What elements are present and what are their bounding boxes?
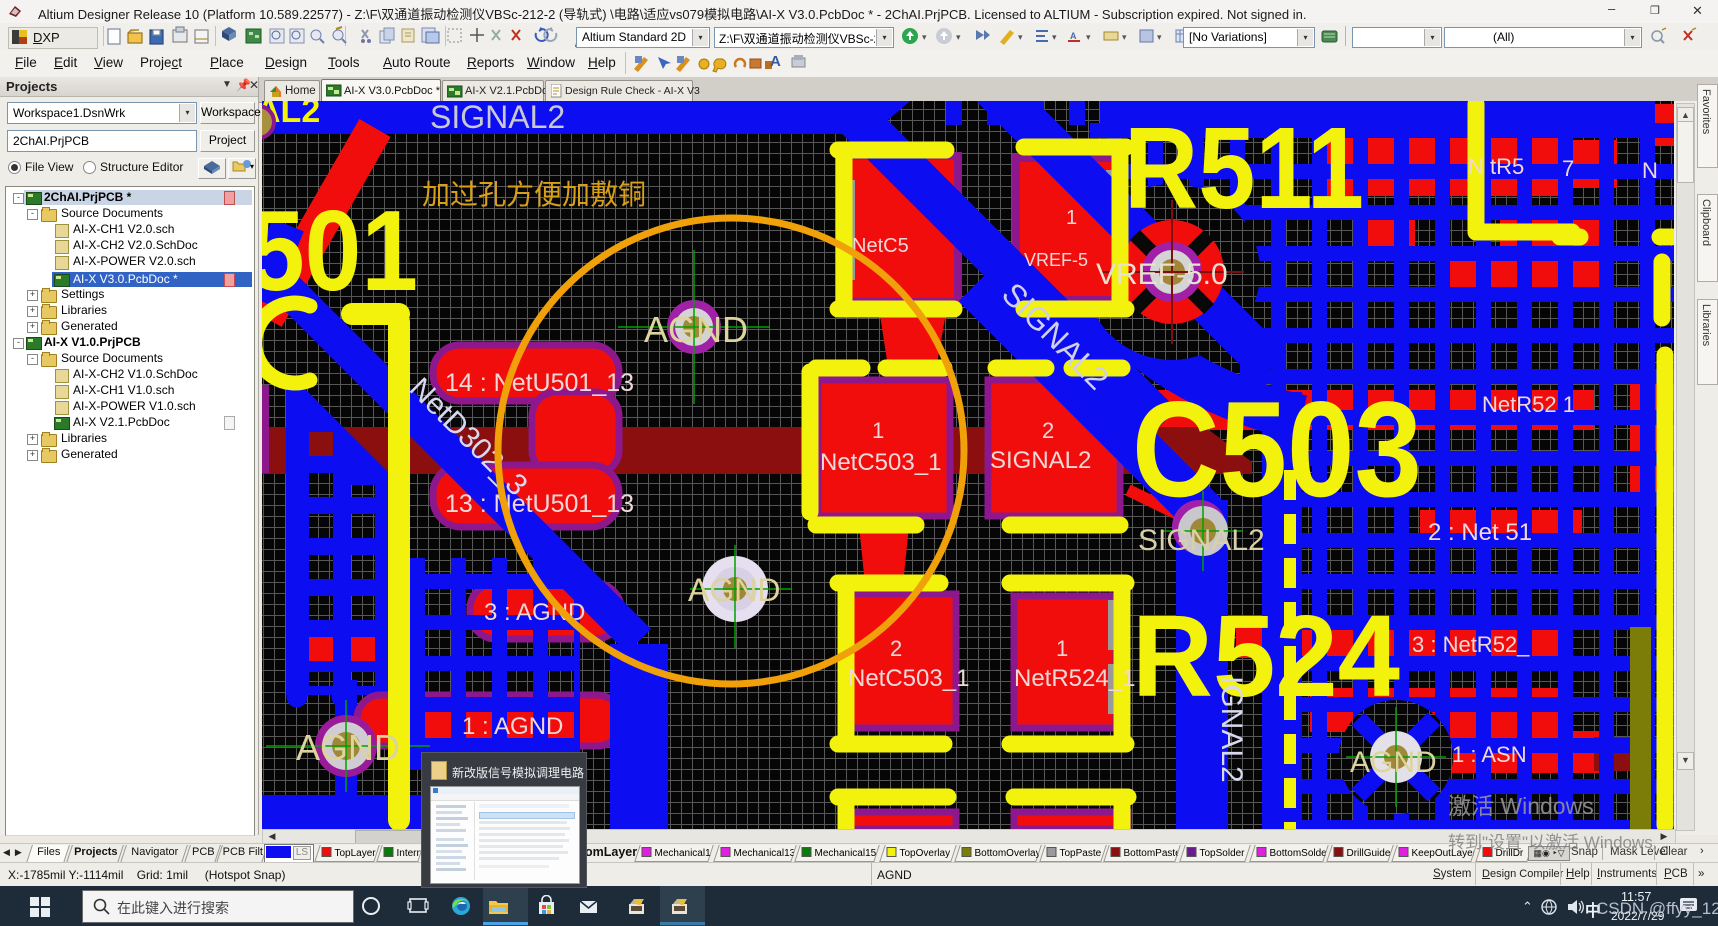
svg-text:SIGNAL2: SIGNAL2 xyxy=(430,101,565,135)
svg-text:14 : NetU501_13: 14 : NetU501_13 xyxy=(445,369,634,397)
svg-text:2: 2 xyxy=(1042,418,1054,443)
svg-text:2 : Net 51: 2 : Net 51 xyxy=(1428,519,1532,546)
svg-text:NetC503_1: NetC503_1 xyxy=(820,449,941,476)
svg-text:▾: ▾ xyxy=(1157,32,1162,42)
svg-text:NetR524_1: NetR524_1 xyxy=(1014,665,1135,692)
svg-text:501: 501 xyxy=(262,188,418,315)
svg-text:IGNAL2: IGNAL2 xyxy=(1215,676,1248,783)
svg-text:▾: ▾ xyxy=(1122,32,1127,42)
svg-text:▾: ▾ xyxy=(1086,32,1091,42)
svg-text:VREF-5: VREF-5 xyxy=(1024,250,1088,270)
svg-text:N: N xyxy=(1642,158,1658,183)
svg-text:▾: ▾ xyxy=(956,32,961,42)
svg-text:R524: R524 xyxy=(1132,591,1400,721)
svg-text:SIGNAL2: SIGNAL2 xyxy=(990,447,1091,474)
svg-text:1: 1 xyxy=(1066,207,1077,229)
svg-text:1 : AGND: 1 : AGND xyxy=(462,713,563,740)
svg-text:AGND: AGND xyxy=(688,572,780,608)
svg-text:▾: ▾ xyxy=(922,32,927,42)
svg-text:VREF-5.0: VREF-5.0 xyxy=(1096,258,1228,291)
svg-text:加过孔方便加敷铜: 加过孔方便加敷铜 xyxy=(422,179,646,210)
svg-text:C503: C503 xyxy=(1132,373,1422,525)
svg-text:NetC503_1: NetC503_1 xyxy=(848,665,969,692)
svg-text:1: 1 xyxy=(1056,636,1068,661)
svg-text:▾: ▾ xyxy=(1052,32,1057,42)
svg-text:1 : ASN: 1 : ASN xyxy=(1452,742,1527,767)
svg-text:NetR52 1: NetR52 1 xyxy=(1482,392,1575,417)
svg-text:13 : NetU501_13: 13 : NetU501_13 xyxy=(445,490,634,518)
svg-text:SIGNAL2: SIGNAL2 xyxy=(1138,524,1265,557)
svg-text:AGND: AGND xyxy=(644,309,748,350)
svg-text:2: 2 xyxy=(890,636,902,661)
svg-text:▾: ▾ xyxy=(1018,32,1023,42)
svg-text:7: 7 xyxy=(1562,156,1574,181)
svg-text:1: 1 xyxy=(872,418,884,443)
svg-text:激活 Windows: 激活 Windows xyxy=(1448,793,1594,819)
svg-text:R511: R511 xyxy=(1124,103,1364,233)
svg-text:N tR5: N tR5 xyxy=(1468,154,1524,179)
svg-text:3 : NetR52_: 3 : NetR52_ xyxy=(1412,632,1530,657)
svg-text:AGND: AGND xyxy=(296,727,400,768)
svg-text:AGND: AGND xyxy=(1350,746,1437,779)
svg-text:A: A xyxy=(1070,31,1077,41)
